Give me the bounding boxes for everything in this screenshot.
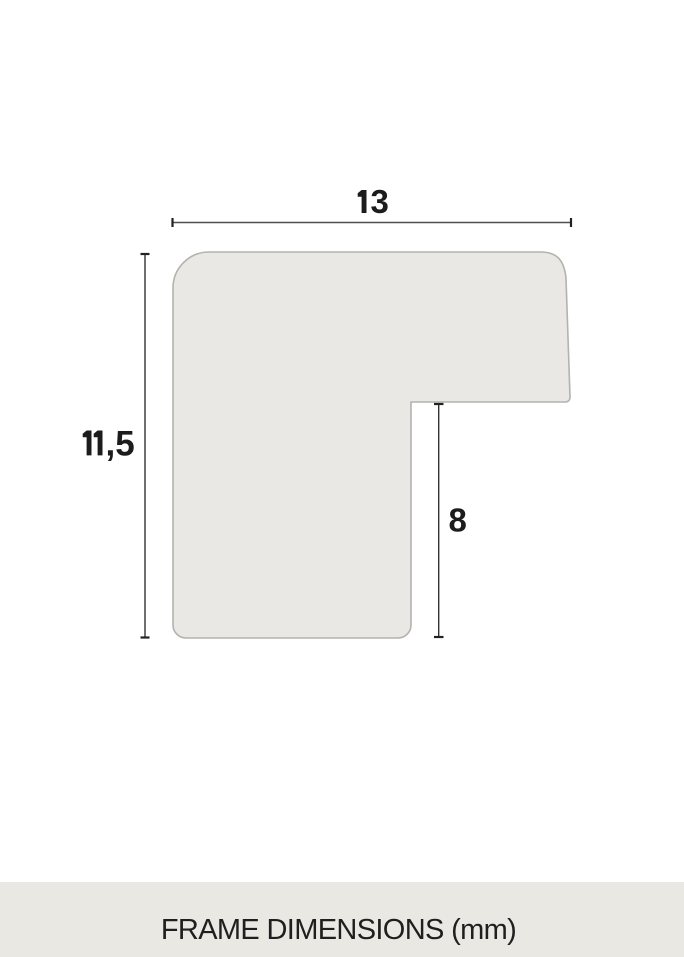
svg-text:,5: ,5 xyxy=(106,424,135,463)
svg-text:FRAME DIMENSIONS (mm): FRAME DIMENSIONS (mm) xyxy=(161,914,516,946)
svg-text:3: 3 xyxy=(370,183,388,220)
svg-text:8: 8 xyxy=(449,502,467,539)
